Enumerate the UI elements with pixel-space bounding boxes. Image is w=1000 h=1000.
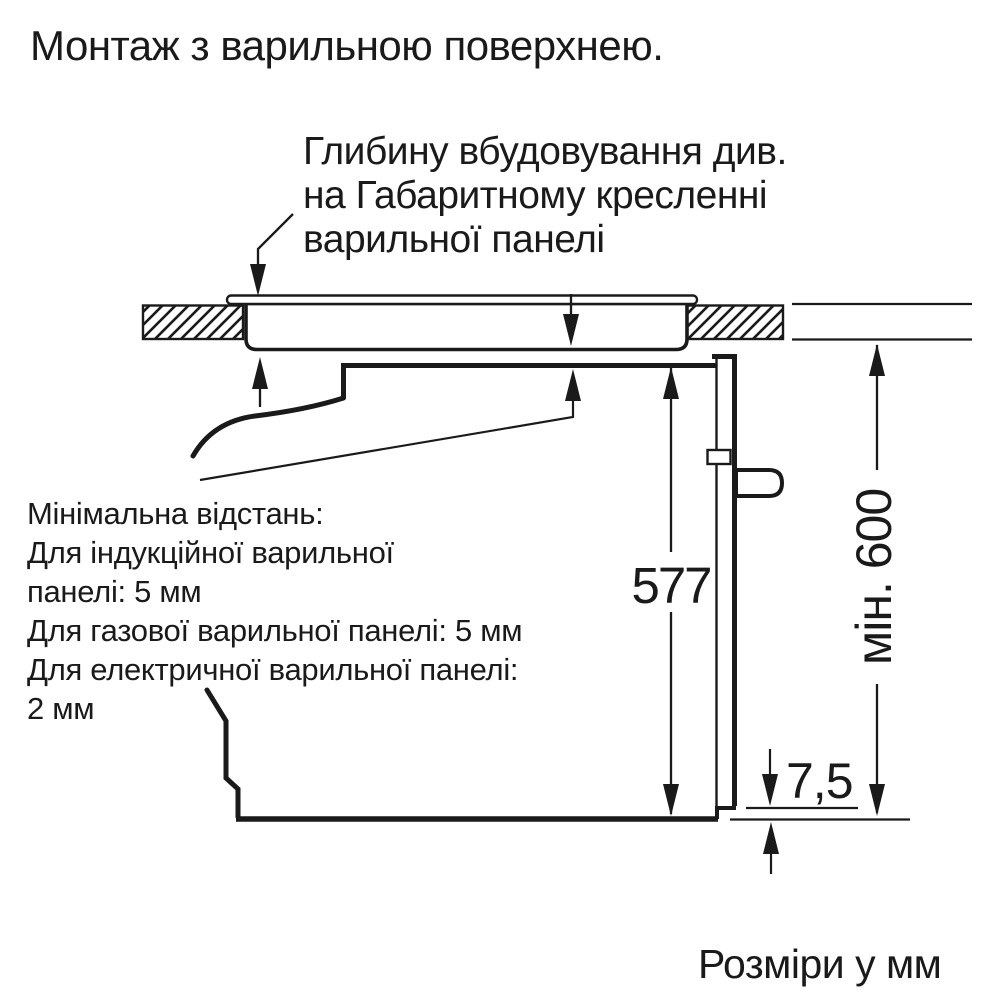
min-distance-note-line1: Мінімальна відстань: — [27, 494, 522, 533]
min-distance-note-line2: Для індукційної варильної — [27, 533, 522, 572]
min-distance-note-line4: Для газової варильної панелі: 5 мм — [27, 611, 522, 650]
min-distance-note-line5: Для електричної варильної панелі: — [27, 650, 522, 689]
arrow-up-icon — [663, 367, 679, 399]
arrow-up-icon — [869, 344, 885, 376]
oven-knob — [736, 470, 782, 496]
units-note: Розміри у мм — [698, 941, 941, 988]
dimension-label-min-600: мін. 600 — [845, 489, 903, 665]
oven-top-outline — [344, 366, 717, 399]
worktop-section-left — [143, 306, 243, 340]
arrow-down-icon — [869, 784, 885, 816]
arrow-down-icon — [663, 784, 679, 816]
min-distance-arrow-left — [252, 357, 268, 407]
min-distance-note-line6: 2 мм — [27, 689, 522, 728]
hob-tub — [246, 304, 687, 350]
embedding-depth-note: Глибину вбудовування див. на Габаритному… — [303, 130, 787, 262]
embedding-depth-note-line1: Глибину вбудовування див. — [303, 130, 787, 174]
embedding-depth-note-line3: варильної панелі — [303, 218, 787, 262]
dimension-label-577: 577 — [625, 556, 717, 615]
embedding-depth-note-line2: на Габаритному кресленні — [303, 174, 787, 218]
installation-diagram: Монтаж з варильною поверхнею. Глибину вб… — [0, 0, 1000, 1000]
diagram-title: Монтаж з варильною поверхнею. — [30, 22, 663, 70]
arrow-down-icon — [250, 264, 266, 296]
worktop-section-right — [682, 306, 783, 340]
oven-door-bottom-step — [717, 808, 736, 819]
oven-hinge-notch — [708, 450, 731, 464]
arrow-up-icon — [252, 357, 268, 389]
embedding-depth-leader-left — [250, 214, 293, 296]
oven-front-break-curve — [193, 398, 344, 456]
min-distance-note: Мінімальна відстань: Для індукційної вар… — [27, 494, 522, 728]
dimension-label-7-5: 7,5 — [786, 752, 853, 810]
arrow-up-icon — [565, 369, 581, 401]
arrow-up-icon — [763, 822, 779, 854]
worktop-continuation-lines — [792, 304, 972, 340]
arrow-down-icon — [762, 774, 778, 806]
hob-top-plate — [227, 296, 697, 305]
min-distance-note-line3: панелі: 5 мм — [27, 572, 522, 611]
